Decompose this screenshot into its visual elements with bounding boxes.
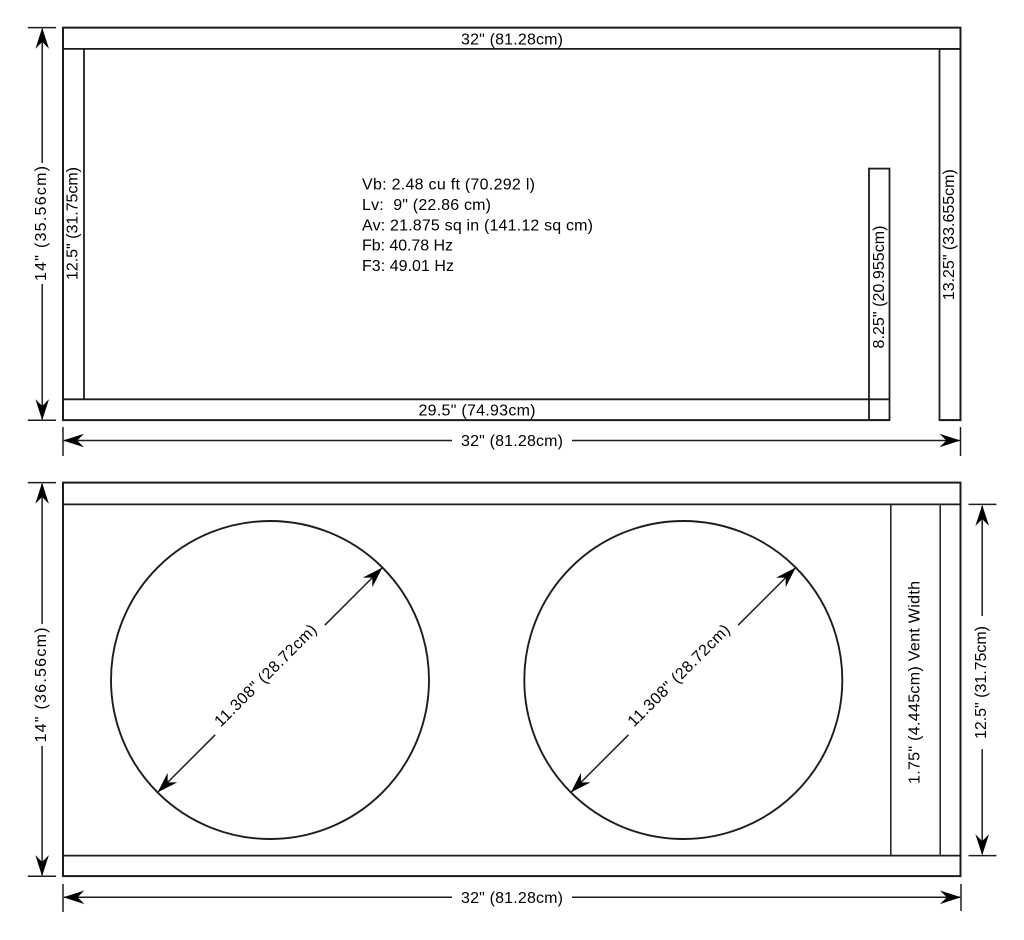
svg-text:32" (81.28cm): 32" (81.28cm) [461,32,563,49]
svg-text:1.75" (4.445cm) Vent Width: 1.75" (4.445cm) Vent Width [907,581,924,784]
svg-text:11.308" (28.72cm): 11.308" (28.72cm) [625,622,734,731]
svg-text:12.5" (31.75cm): 12.5" (31.75cm) [973,626,990,739]
svg-text:8.25" (20.955cm): 8.25" (20.955cm) [871,226,888,349]
svg-text:32" (81.28cm): 32" (81.28cm) [461,890,563,907]
svg-text:12.5" (31.75cm): 12.5" (31.75cm) [64,167,81,280]
svg-text:11.308" (28.72cm): 11.308" (28.72cm) [212,622,321,731]
svg-text:Fb: 40.78 Hz: Fb: 40.78 Hz [362,238,453,255]
svg-text:Av: 21.875 sq in (141.12 sq cm: Av: 21.875 sq in (141.12 sq cm) [362,217,593,234]
svg-text:14" (35.56cm): 14" (35.56cm) [33,166,50,281]
svg-text:F3: 49.01 Hz: F3: 49.01 Hz [362,258,454,275]
svg-text:13.25" (33.655cm): 13.25" (33.655cm) [941,169,958,300]
svg-text:Vb: 2.48 cu ft (70.292 l): Vb: 2.48 cu ft (70.292 l) [362,177,535,194]
svg-text:32" (81.28cm): 32" (81.28cm) [461,433,563,450]
svg-text:Lv: 9" (22.86 cm): Lv: 9" (22.86 cm) [362,197,491,214]
svg-text:14" (36.56cm): 14" (36.56cm) [33,628,50,743]
svg-text:29.5" (74.93cm): 29.5" (74.93cm) [419,403,536,420]
